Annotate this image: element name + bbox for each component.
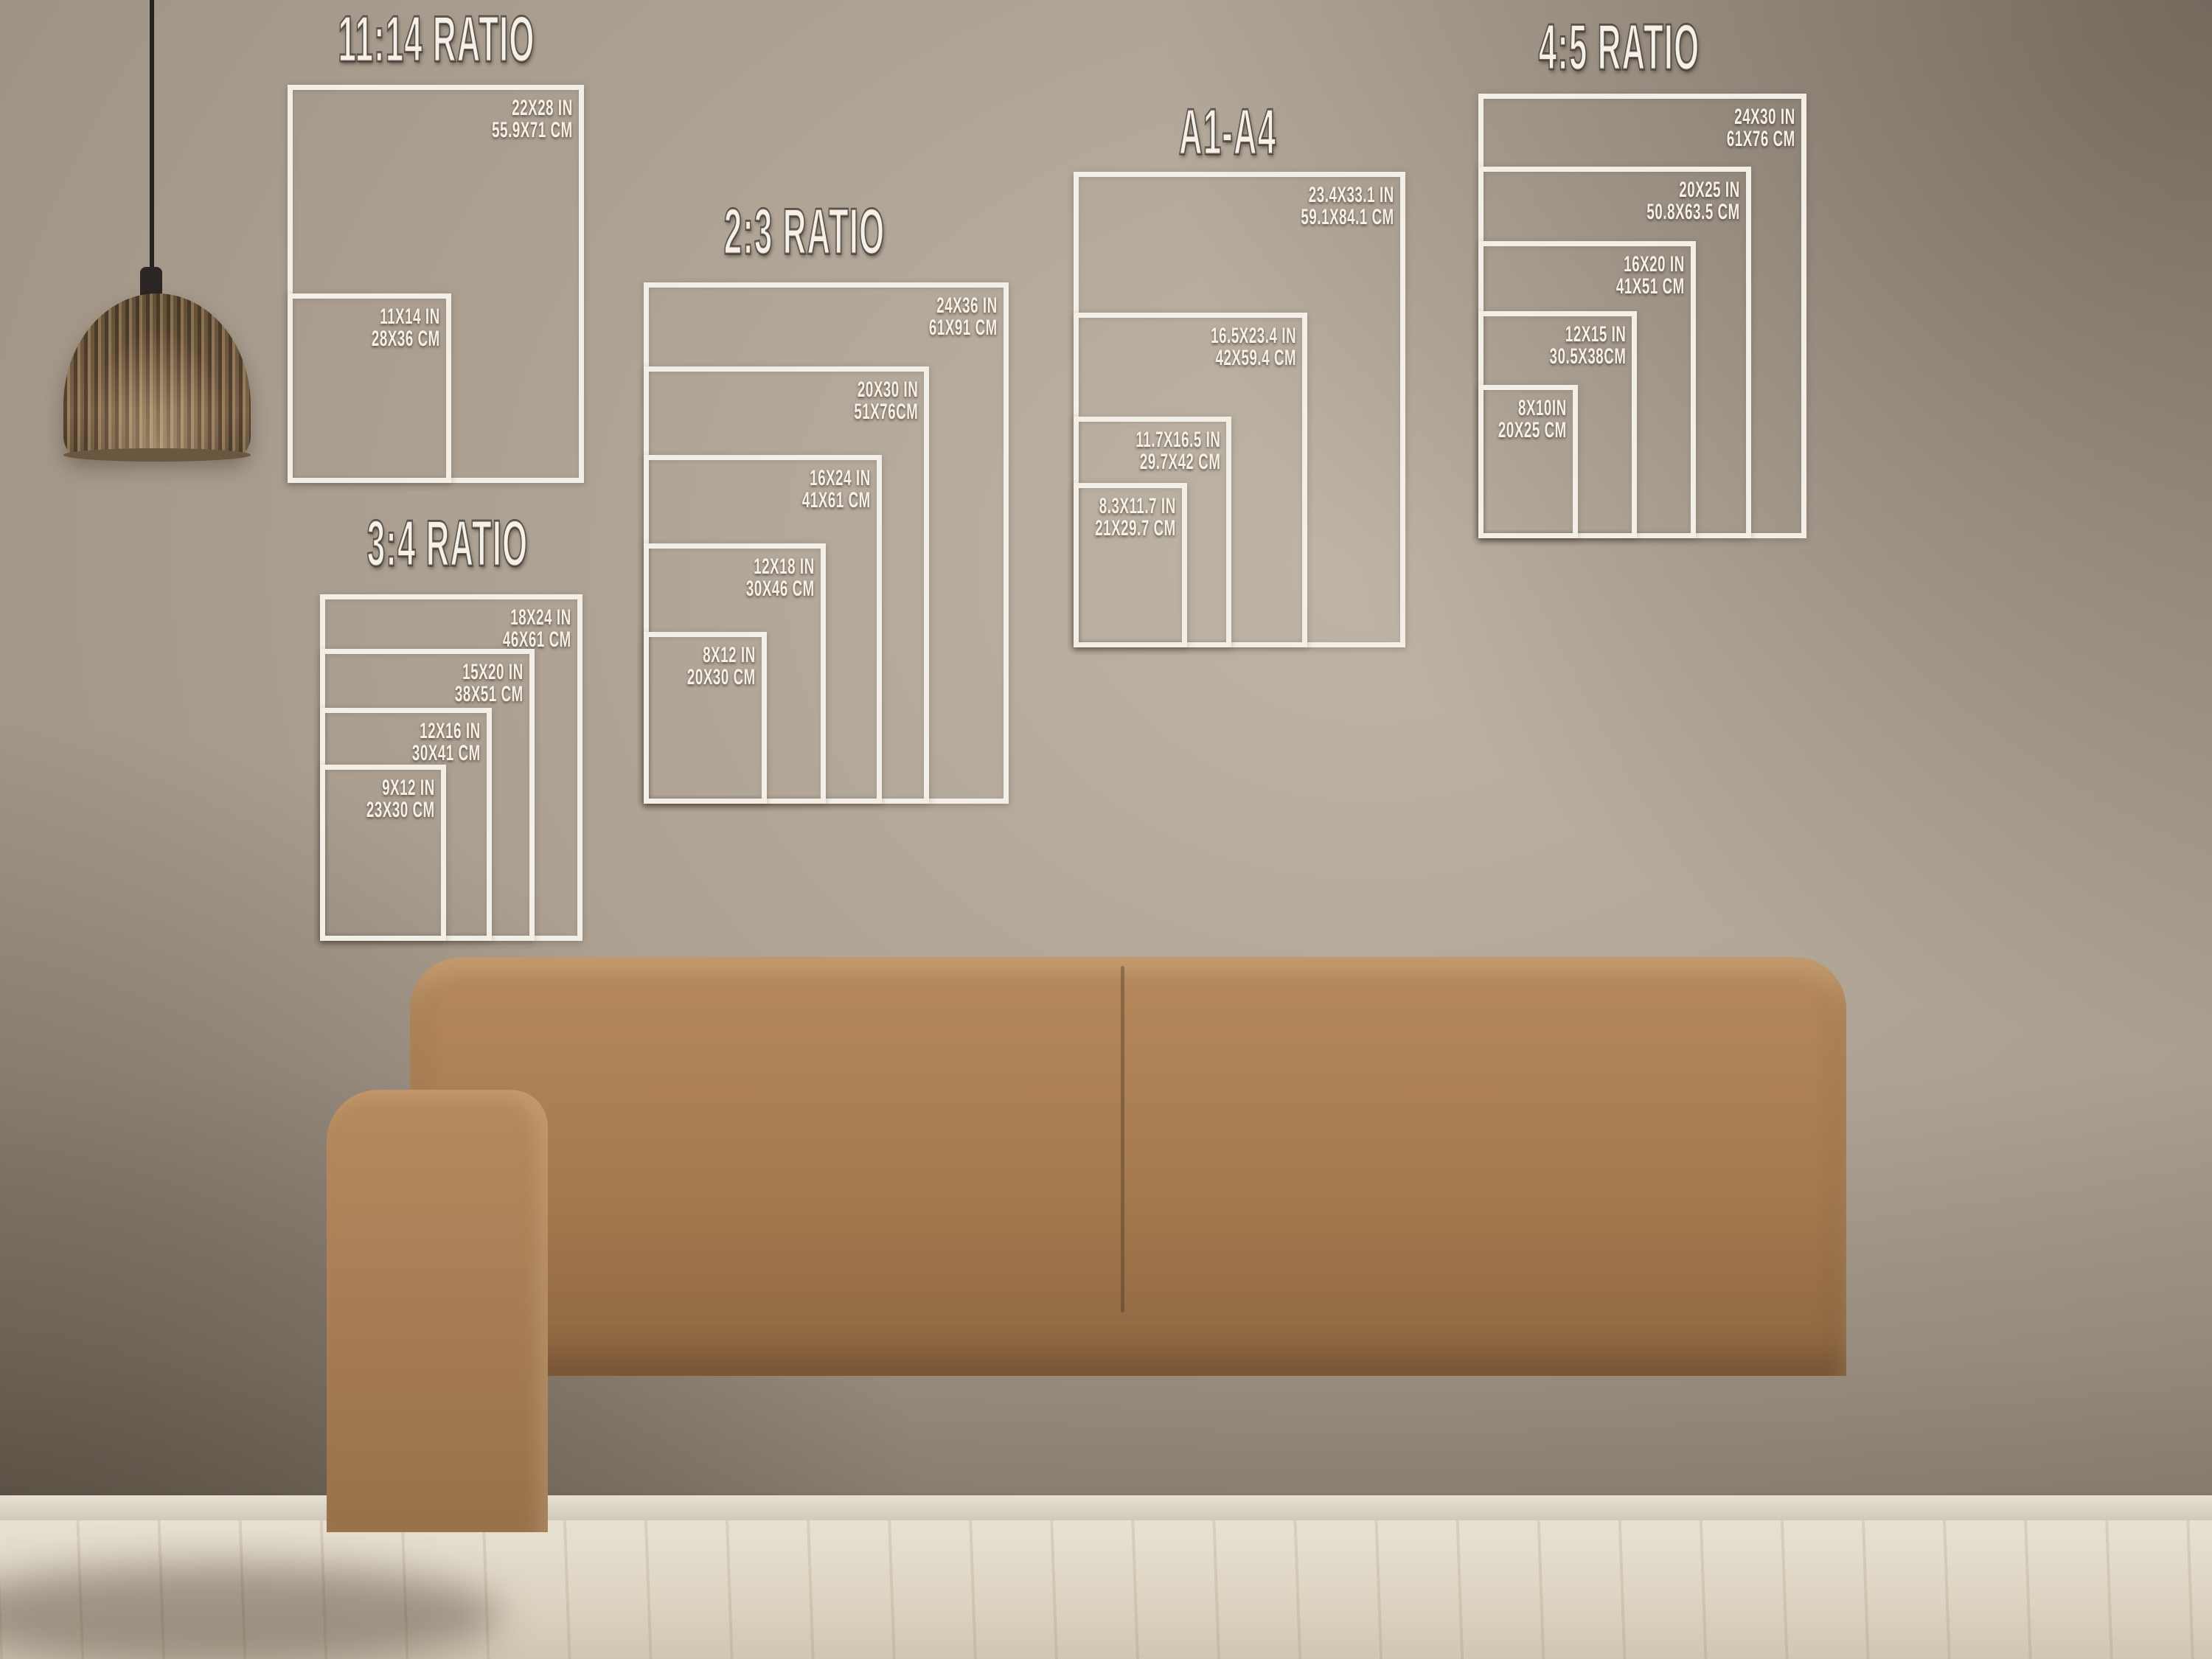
sofa-backrest — [410, 957, 1846, 1376]
size-label: 9X12 IN23X30 CM — [366, 777, 435, 821]
size-frame-9x12: 9X12 IN23X30 CM — [320, 765, 446, 941]
size-label: 24X30 IN61X76 CM — [1727, 106, 1795, 150]
group-title-2-3: 2:3 RATIO — [724, 194, 885, 269]
size-label: 11.7X16.5 IN29.7X42 CM — [1135, 429, 1220, 473]
sofa-seam — [1121, 966, 1124, 1312]
size-label: 8X12 IN20X30 CM — [687, 644, 756, 689]
size-label: 16X20 IN41X51 CM — [1616, 254, 1685, 298]
size-label: 8X10IN20X25 CM — [1498, 397, 1567, 442]
size-label: 24X36 IN61X91 CM — [929, 295, 998, 339]
size-label: 12X18 IN30X46 CM — [746, 556, 815, 600]
size-label: 12X16 IN30X41 CM — [412, 720, 481, 765]
group-title-a1-a4: A1-A4 — [1179, 94, 1276, 170]
group-title-3-4: 3:4 RATIO — [367, 506, 528, 581]
living-room-size-guide-scene: 11:14 RATIO 22X28 IN55.9X71 CM 11X14 IN2… — [0, 0, 2212, 1659]
size-frame-8x12: 8X12 IN20X30 CM — [644, 632, 767, 804]
pendant-lamp-rim — [63, 448, 251, 462]
size-label: 16.5X23.4 IN42X59.4 CM — [1211, 325, 1296, 369]
size-label: 20X30 IN51X76CM — [854, 379, 918, 423]
group-title-11-14: 11:14 RATIO — [338, 1, 535, 77]
size-label: 20X25 IN50.8X63.5 CM — [1647, 179, 1740, 223]
size-label: 16X24 IN41X61 CM — [802, 467, 871, 512]
size-label: 15X20 IN38X51 CM — [455, 661, 524, 706]
size-label: 8.3X11.7 IN21X29.7 CM — [1095, 495, 1176, 540]
sofa-arm-left — [327, 1090, 548, 1532]
size-label: 18X24 IN46X61 CM — [503, 607, 571, 651]
pendant-cord — [150, 0, 154, 295]
sofa-arm-right — [1705, 1078, 1926, 1532]
group-title-4-5: 4:5 RATIO — [1539, 10, 1700, 85]
size-frame-a4: 8.3X11.7 IN21X29.7 CM — [1074, 483, 1187, 647]
size-label: 22X28 IN55.9X71 CM — [492, 97, 573, 142]
size-label: 12X15 IN30.5X38CM — [1549, 324, 1626, 368]
size-frame-11x14: 11X14 IN28X36 CM — [288, 293, 451, 483]
size-label: 11X14 IN28X36 CM — [372, 306, 440, 350]
size-label: 23.4X33.1 IN59.1X84.1 CM — [1301, 184, 1394, 229]
size-frame-8x10: 8X10IN20X25 CM — [1478, 385, 1578, 538]
